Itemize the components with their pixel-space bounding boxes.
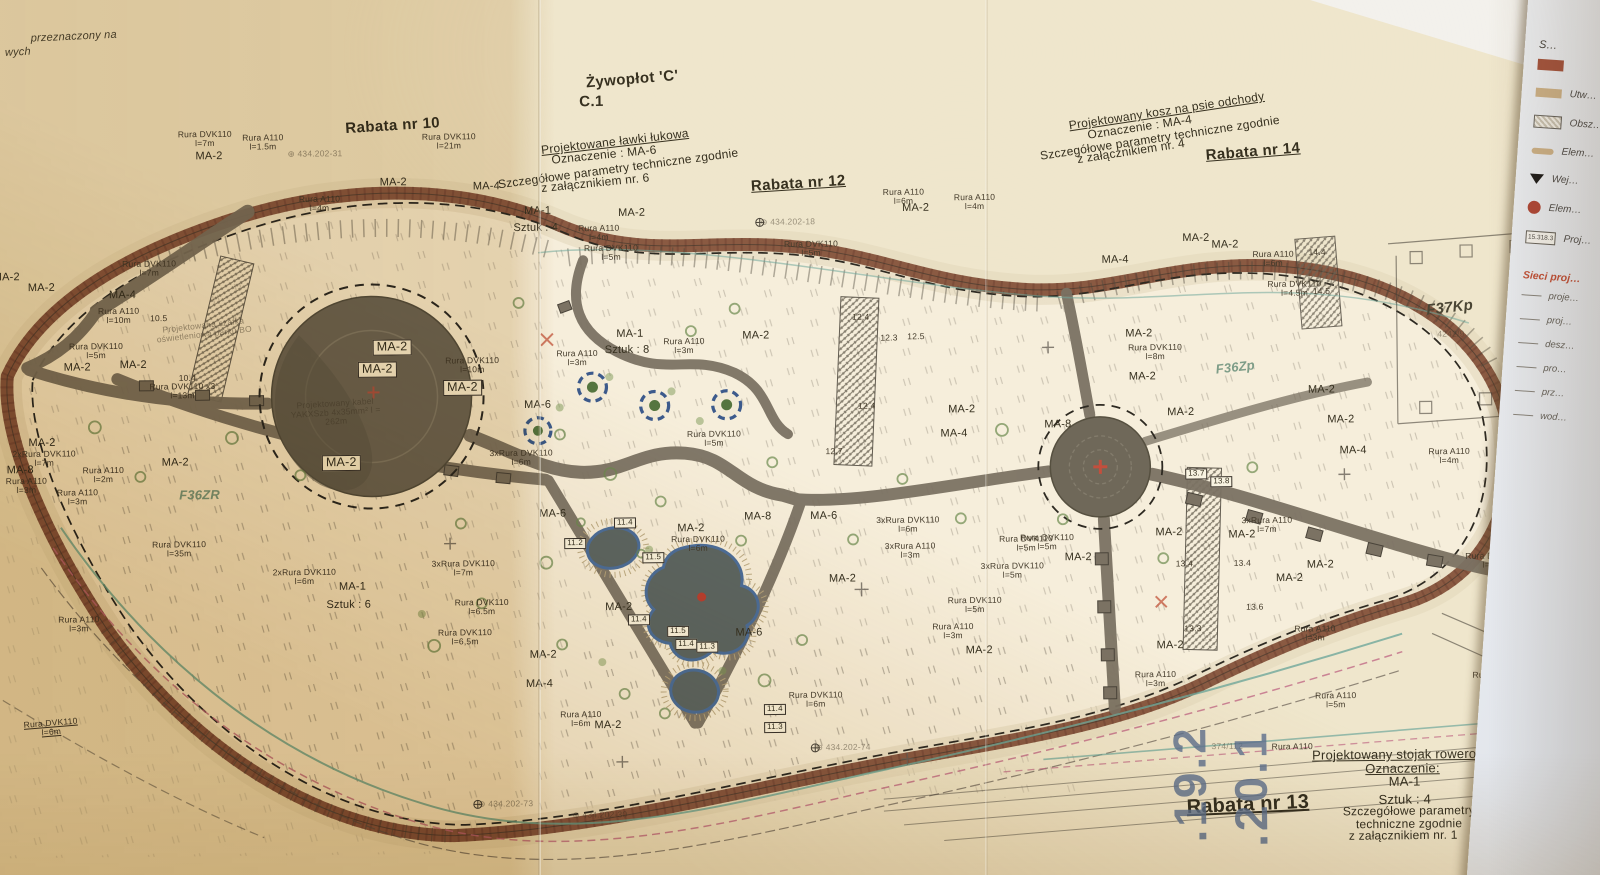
legend-network-item: desz… xyxy=(1518,337,1600,357)
plan-label: Projektowany stojak rowerowy Oznaczenie: xyxy=(1302,747,1503,777)
plan-label: Rura A110 l=6m xyxy=(1252,250,1294,269)
plan-label: MA-1 xyxy=(616,329,643,341)
plan-label: ⊕ 434.202-31 xyxy=(288,149,343,159)
plan-label: MA-4 xyxy=(1102,255,1129,267)
plan-label: Rura DVK110 l=6m xyxy=(671,535,725,554)
photographed-site-plan: przeznaczony nawychRura DVK110 l=7mRura … xyxy=(0,0,1600,875)
plan-label: ⊕ 434.202-73 xyxy=(478,799,533,809)
plan-label: MA-4 xyxy=(109,290,136,302)
plan-label: MA-4 xyxy=(1340,445,1367,457)
plan-label: MA-2 xyxy=(1308,384,1335,396)
plan-label: MA-2 xyxy=(64,362,91,374)
plan-label: ⊕ 434.202-18 xyxy=(760,217,815,227)
plan-label: 11.2 xyxy=(564,538,586,549)
plan-label: MA-2 xyxy=(1065,552,1092,564)
legend-network-rows: proje…proj…desz…pro…prz…wod… xyxy=(1513,289,1600,429)
legend-swatch-sw-circle-red xyxy=(1527,200,1541,214)
plan-label: MA-2 xyxy=(380,177,407,189)
plan-label: 11.4 xyxy=(764,704,786,715)
plan-label: Rabata nr 12 xyxy=(751,173,847,195)
plan-label: 11.4 xyxy=(675,639,697,650)
legend-title: S… xyxy=(1539,39,1600,60)
plan-label: Rura DVK110 l=5m xyxy=(584,244,638,263)
legend-item-label: Proj… xyxy=(1563,234,1591,247)
plan-label: MA-2 xyxy=(28,283,55,295)
plan-label: MA-2 xyxy=(618,208,645,220)
legend-swatch-sw-box-label: 15.318.3 xyxy=(1525,230,1556,245)
legend-network-label: proje… xyxy=(1548,291,1579,304)
plan-label: MA-2 xyxy=(322,455,361,471)
legend-swatch-sw-rect-red xyxy=(1537,59,1564,72)
plan-label: Rura DVK110 l=10m xyxy=(445,356,499,375)
plan-label: 3xRura DVK110 l=5m xyxy=(981,561,1045,580)
plan-label: Rura A110 l=3m xyxy=(1294,624,1336,643)
plan-label: 14.5 xyxy=(1313,287,1330,296)
plan-label: Rura DVK110 l=6m xyxy=(789,690,843,709)
plan-label: Rura DVK110 l=5m xyxy=(1020,533,1074,552)
plan-label: 12.4 xyxy=(852,313,869,322)
plan-label: MA-4 xyxy=(526,679,553,691)
legend-item-label: Wej… xyxy=(1551,174,1579,187)
plan-label: 13.7 xyxy=(1185,468,1207,479)
plan-label: MA-6 xyxy=(524,400,551,412)
legend-network-label: pro… xyxy=(1543,363,1567,376)
plan-label: MA-2 xyxy=(902,203,929,215)
plan-label: Rura A110 l=3m xyxy=(6,477,48,496)
legend-item-label: Obsz… xyxy=(1569,118,1600,131)
plan-label: Rura A110 l=4m xyxy=(954,193,996,212)
plan-label: MA-2 xyxy=(1129,371,1156,383)
plan-label: z załącznikiem nr. 1 xyxy=(1349,829,1458,843)
legend-item: 15.318.3Proj… xyxy=(1525,230,1600,252)
plan-label: Sztuk : 6 xyxy=(326,600,371,612)
plan-label: Rura A110 l=4m xyxy=(1428,447,1470,466)
plan-label: 13.4 xyxy=(1234,559,1251,568)
plan-label: Rura A110 l=4m xyxy=(578,224,620,243)
legend-network-label: proj… xyxy=(1546,315,1572,328)
plan-label: MA-2 xyxy=(1125,328,1152,340)
legend-swatch-sw-box-hatch xyxy=(1533,115,1562,130)
plan-label: Rura DVK110 l=5m xyxy=(687,429,741,448)
plan-label: Rabata nr 14 xyxy=(1205,140,1301,164)
plan-label: Rura A110 l=4m xyxy=(299,195,341,214)
plan-label: Rura DVK110 l=6,5m xyxy=(438,628,492,647)
legend-network-item: prz… xyxy=(1514,385,1600,405)
plan-label: MA-6 xyxy=(735,627,762,639)
plan-label: Rura A110 l=3m xyxy=(663,337,705,356)
plan-label: Żywopłot 'C' xyxy=(585,68,679,92)
legend-network-item: proje… xyxy=(1521,289,1600,309)
plan-label: 3xRura A110 l=3m xyxy=(885,541,936,560)
plan-label: 11.3 xyxy=(696,642,718,653)
plan-label: Rura A110 l=3m xyxy=(932,622,974,641)
plan-label: 14.4 xyxy=(1308,248,1325,257)
plan-label: Rura DVK110 l=7m xyxy=(122,259,176,278)
plan-label: Rura A110 l=3m xyxy=(58,615,100,634)
plan-label: 12.5 xyxy=(907,332,924,341)
legend-swatch-sw-tri-black xyxy=(1529,173,1544,184)
plan-label: 11.5 xyxy=(667,626,689,637)
plan-label: .19.2 xyxy=(1165,725,1216,843)
plan-label: MA-2 xyxy=(1211,239,1238,251)
plan-label: ⊕ 434.202-30 xyxy=(572,810,627,820)
plan-label: Rura A110 l=1.5m xyxy=(242,133,284,152)
legend-line-sample xyxy=(1522,294,1542,296)
legend-swatch-sw-rect-tan xyxy=(1535,88,1562,99)
legend-item: Elem… xyxy=(1531,145,1600,165)
legend-item-label: Elem… xyxy=(1548,203,1581,216)
plan-label: MA-2 xyxy=(1182,233,1209,245)
plan-label: MA-2 xyxy=(1327,414,1354,426)
plan-label: MA-2 xyxy=(742,330,769,342)
plan-label: Rura A110 l=3m xyxy=(1135,670,1177,689)
plan-label: Rura DVK110 l=21m xyxy=(422,132,476,151)
plan-label: 3xRura DVK110 l=7m xyxy=(432,559,496,578)
plan-label: Rura DVK110 l=5m xyxy=(784,239,838,258)
plan-label: MA-2 xyxy=(605,602,632,614)
plan-label: Rura A110 l=3m xyxy=(57,488,99,507)
legend-item-label: Utw… xyxy=(1569,89,1597,102)
plan-label: 13.4 xyxy=(1176,559,1193,568)
plan-label: Rura DVK110 l=6m xyxy=(23,717,78,740)
plan-label: 12.4 xyxy=(858,402,875,411)
legend-line-sample xyxy=(1516,366,1536,368)
plan-label: 13.6 xyxy=(1246,603,1263,612)
plan-sheet: przeznaczony nawychRura DVK110 l=7mRura … xyxy=(0,0,1600,875)
plan-label: 11.4 xyxy=(628,614,650,625)
plan-label: MA-4 xyxy=(473,181,500,193)
legend-item: Utw… xyxy=(1535,87,1600,107)
plan-label: 2xRura DVK110 l=6m xyxy=(273,568,337,587)
plan-label: MA-2 xyxy=(1307,559,1334,571)
plan-label: MA-2 xyxy=(1157,640,1184,652)
legend-rows: Utw…Obsz…Elem…Wej…Elem…15.318.3Proj… xyxy=(1525,59,1600,253)
plan-label: przeznaczony na xyxy=(30,30,117,46)
legend-network-item: pro… xyxy=(1516,361,1600,381)
legend-network-item: wod… xyxy=(1513,409,1600,429)
plan-label: Rura DVK110 l=6.5m xyxy=(455,598,509,617)
plan-label: wych xyxy=(5,47,31,60)
plan-label: Sztuk : 8 xyxy=(605,345,650,357)
plan-label: Rura A110 l=5m xyxy=(1315,691,1357,710)
plan-label: Rura DVK110 l=7m xyxy=(178,130,232,149)
plan-label: 11.5 xyxy=(642,552,664,563)
plan-label: MA-2 xyxy=(829,573,856,585)
plan-label: MA-8 xyxy=(1044,419,1071,431)
plan-label: Rura DVK110 x3 l=13m xyxy=(149,382,215,401)
plan-label: Sztuk : 4 xyxy=(513,223,558,235)
plan-label: Rura DVK110 l=5m xyxy=(69,342,123,361)
legend-line-sample xyxy=(1513,414,1533,416)
plan-label: MA-1 xyxy=(1389,775,1421,789)
legend-item xyxy=(1537,59,1600,79)
plan-label: MA-2 xyxy=(1155,527,1182,539)
legend-swatch-sw-pill-tan xyxy=(1531,147,1553,155)
plan-label: Projektowana szafka oświetleniowa parku … xyxy=(155,316,252,345)
plan-label: Rura DVK110 l=8m xyxy=(1128,343,1182,362)
plan-label: MA-2 xyxy=(1276,573,1303,585)
plan-label: F36ZR xyxy=(179,488,220,502)
plan-label: 4242/9 xyxy=(1437,329,1464,338)
plan-label: MA-2 xyxy=(0,272,20,284)
plan-label: MA-2 xyxy=(948,404,975,416)
plan-label: 13.8 xyxy=(1210,476,1232,487)
legend-line-sample xyxy=(1518,342,1538,344)
plan-label: MA-4 xyxy=(940,428,967,440)
plan-label: MA-1 xyxy=(339,582,366,594)
legend-networks-title: Sieci proj… xyxy=(1522,269,1600,290)
plan-label: F36Zp xyxy=(1215,358,1256,376)
legend-item: Wej… xyxy=(1529,172,1600,192)
plan-label: MA-2 xyxy=(530,650,557,662)
plan-label: Rura A110 l=2m xyxy=(83,466,125,485)
plan-label: Rura A110 l=3m xyxy=(556,349,598,368)
plan-label: F37Kp xyxy=(1425,297,1473,318)
legend-item: Obsz… xyxy=(1533,115,1600,137)
legend-network-label: desz… xyxy=(1545,339,1575,352)
plan-annotations: przeznaczony nawychRura DVK110 l=7mRura … xyxy=(0,0,1600,875)
plan-label: 12.3 xyxy=(880,333,897,342)
legend-line-sample xyxy=(1520,318,1540,320)
plan-label: Rura DVK110 l=5m xyxy=(948,596,1002,615)
plan-label: 11.4 xyxy=(614,517,636,528)
legend-line-sample xyxy=(1515,390,1535,392)
legend-network-item: proj… xyxy=(1519,313,1600,333)
plan-label: MA-2 xyxy=(120,360,147,372)
plan-label: MA-6 xyxy=(810,511,837,523)
plan-label: MA-8 xyxy=(744,511,771,523)
plan-label: 12.7 xyxy=(825,447,842,456)
plan-label: Projektowany kabel YAKXSzb 4x35mm² l = 2… xyxy=(290,396,381,429)
plan-label: MA-2 xyxy=(443,380,482,396)
plan-label: MA-2 xyxy=(162,457,189,469)
plan-label: MA-2 xyxy=(594,720,621,732)
plan-label: C.1 xyxy=(579,94,604,110)
plan-label: MA-2 xyxy=(358,361,397,377)
plan-label: 3xRura A110 l=7m xyxy=(1241,516,1292,535)
plan-label: MA-1 xyxy=(524,206,551,218)
plan-label: .20.1 xyxy=(1226,729,1277,847)
legend-item-label: Elem… xyxy=(1561,147,1594,160)
plan-label: 3xRura DVK110 l=6m xyxy=(876,515,940,534)
legend-network-label: wod… xyxy=(1540,411,1568,424)
plan-label: 10.5 xyxy=(150,314,167,323)
plan-label: 3xRura DVK110 l=6m xyxy=(489,448,553,467)
plan-label: Rura A110 l=10m xyxy=(98,307,140,326)
plan-label: 11.3 xyxy=(764,722,786,733)
plan-label: MA-2 xyxy=(966,645,993,657)
plan-label: MA-2 xyxy=(195,151,222,163)
plan-label: MA-6 xyxy=(539,509,566,521)
plan-label: Rura DVK110 l=35m xyxy=(152,540,206,559)
legend-item: Elem… xyxy=(1527,200,1600,222)
plan-label: ⊕ 434.202-74 xyxy=(816,743,871,753)
plan-label: MA-2 xyxy=(1167,407,1194,419)
plan-label: 13.3 xyxy=(1184,624,1201,633)
legend-network-label: prz… xyxy=(1541,387,1564,400)
plan-label: MA-2 xyxy=(373,339,412,355)
